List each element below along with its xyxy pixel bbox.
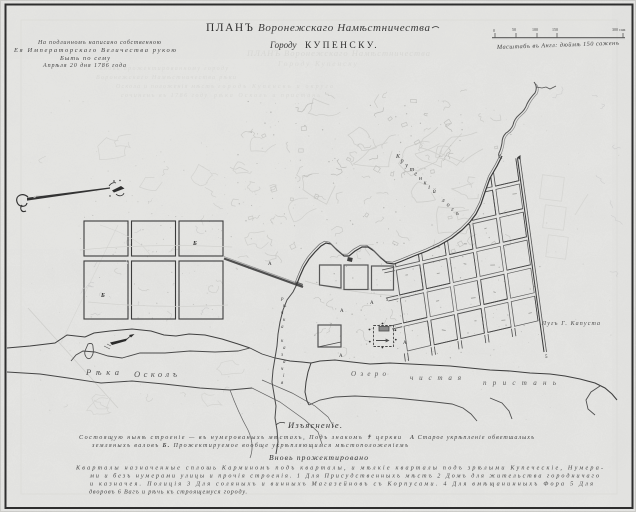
svg-text:вновь прожектированному городу: вновь прожектированному городу <box>100 65 228 72</box>
svg-text:о: о <box>447 202 450 208</box>
svg-text:0: 0 <box>493 28 495 33</box>
svg-text:н: н <box>419 176 422 182</box>
svg-text:150: 150 <box>552 27 558 32</box>
svg-text:ъ: ъ <box>456 211 459 217</box>
svg-text:к: к <box>424 180 427 186</box>
svg-text:Состоящую нынѣ строеніе — въ н: Состоящую нынѣ строеніе — въ нумерованых… <box>79 434 401 441</box>
svg-text:А Старое укрѣпленіе обветшалых: А Старое укрѣпленіе обветшалыхъ <box>409 434 534 441</box>
svg-text:А: А <box>403 341 407 346</box>
svg-text:А: А <box>268 262 272 267</box>
svg-text:рѣка Осколъ и пристань: рѣка Осколъ и пристань <box>213 93 320 99</box>
svg-text:у: у <box>404 163 408 169</box>
svg-text:100: 100 <box>532 27 538 32</box>
svg-text:Городу Купенску: Городу Купенску <box>277 59 358 68</box>
svg-text:300 саж: 300 саж <box>612 27 626 32</box>
svg-text:чистая: чистая <box>410 374 465 382</box>
svg-text:й: й <box>433 188 436 195</box>
svg-text:КУПЕНСКУ.: КУПЕНСКУ. <box>305 41 379 51</box>
svg-text:На подлинномъ написано собстве: На подлинномъ написано собственною <box>37 39 162 46</box>
svg-text:А: А <box>340 309 344 314</box>
svg-text:дворовъ 6 Вагъ и рѣчь къ строя: дворовъ 6 Вагъ и рѣчь къ строящемуся гор… <box>89 489 247 496</box>
svg-text:Городу: Городу <box>269 40 296 50</box>
svg-text:л: л <box>441 198 445 204</box>
svg-text:з: з <box>280 353 283 358</box>
svg-text:Быть по сему: Быть по сему <box>59 55 110 62</box>
svg-text:Оскола и положенія мѣстъ: Оскола и положенія мѣстъ <box>116 84 214 90</box>
svg-text:А: А <box>339 354 343 359</box>
svg-text:50: 50 <box>512 27 516 32</box>
svg-text:земляныхъ валовъ Б. Прожекти: земляныхъ валовъ Б. Прожектируемое вообщ… <box>91 442 408 449</box>
svg-text:Б: Б <box>100 293 105 299</box>
svg-text:пристань: пристань <box>483 379 559 387</box>
svg-text:е: е <box>414 172 417 178</box>
svg-text:Воронежскаго Намѣстничества: Воронежскаго Намѣстничества <box>258 22 431 34</box>
svg-text:Лугъ Г. Капуста: Лугъ Г. Капуста <box>541 321 600 327</box>
svg-text:А: А <box>370 301 374 306</box>
svg-text:городъ Купенскъ и округа: городъ Купенскъ и округа <box>218 83 333 90</box>
svg-text:р: р <box>280 297 284 302</box>
svg-text:р: р <box>400 158 404 164</box>
svg-text:Ея Императорскаго Величества р: Ея Императорскаго Величества рукою <box>13 47 176 54</box>
svg-text:ПЛАНЪ: ПЛАНЪ <box>206 22 254 34</box>
